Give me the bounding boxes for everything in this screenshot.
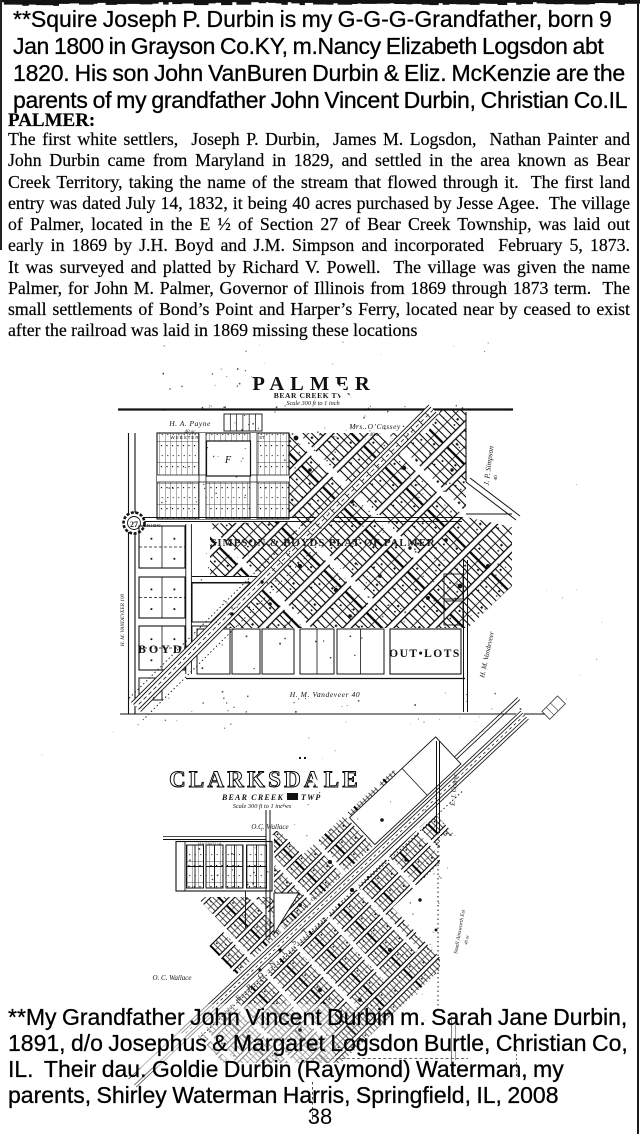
svg-text:WEBSTER: WEBSTER [170,435,199,440]
svg-text:E. J. Craver: E. J. Craver [450,773,460,807]
svg-text:SIMPSON & BOYDS PLAT OF PALMER: SIMPSON & BOYDS PLAT OF PALMER [211,537,436,549]
svg-text:H. M. Vandeveer: H. M. Vandeveer [478,630,496,679]
svg-text:27: 27 [130,520,138,529]
svg-text:H. A. Payne: H. A. Payne [168,419,211,428]
svg-text:TWP: TWP [301,793,322,802]
svg-text:ST: ST [259,435,265,440]
svg-text:40: 40 [494,475,500,481]
svg-text:OUT•LOTS: OUT•LOTS [389,648,461,660]
svg-text:H. M. VANDEVEER 100: H. M. VANDEVEER 100 [120,593,126,647]
svg-text:40 ac: 40 ac [370,433,382,438]
svg-text:H. M. Vandeveer 40: H. M. Vandeveer 40 [289,690,361,699]
svg-text:O. C. Wallace: O. C. Wallace [152,974,191,982]
svg-text:CLARKSDALE: CLARKSDALE [169,767,361,792]
svg-text:MAGNOLIA: MAGNOLIA [198,842,222,846]
svg-text:Scale 300 ft to 1 inch: Scale 300 ft to 1 inch [286,400,339,407]
svg-text:BEAR CREEK: BEAR CREEK [221,793,284,802]
svg-text:F: F [224,455,232,466]
